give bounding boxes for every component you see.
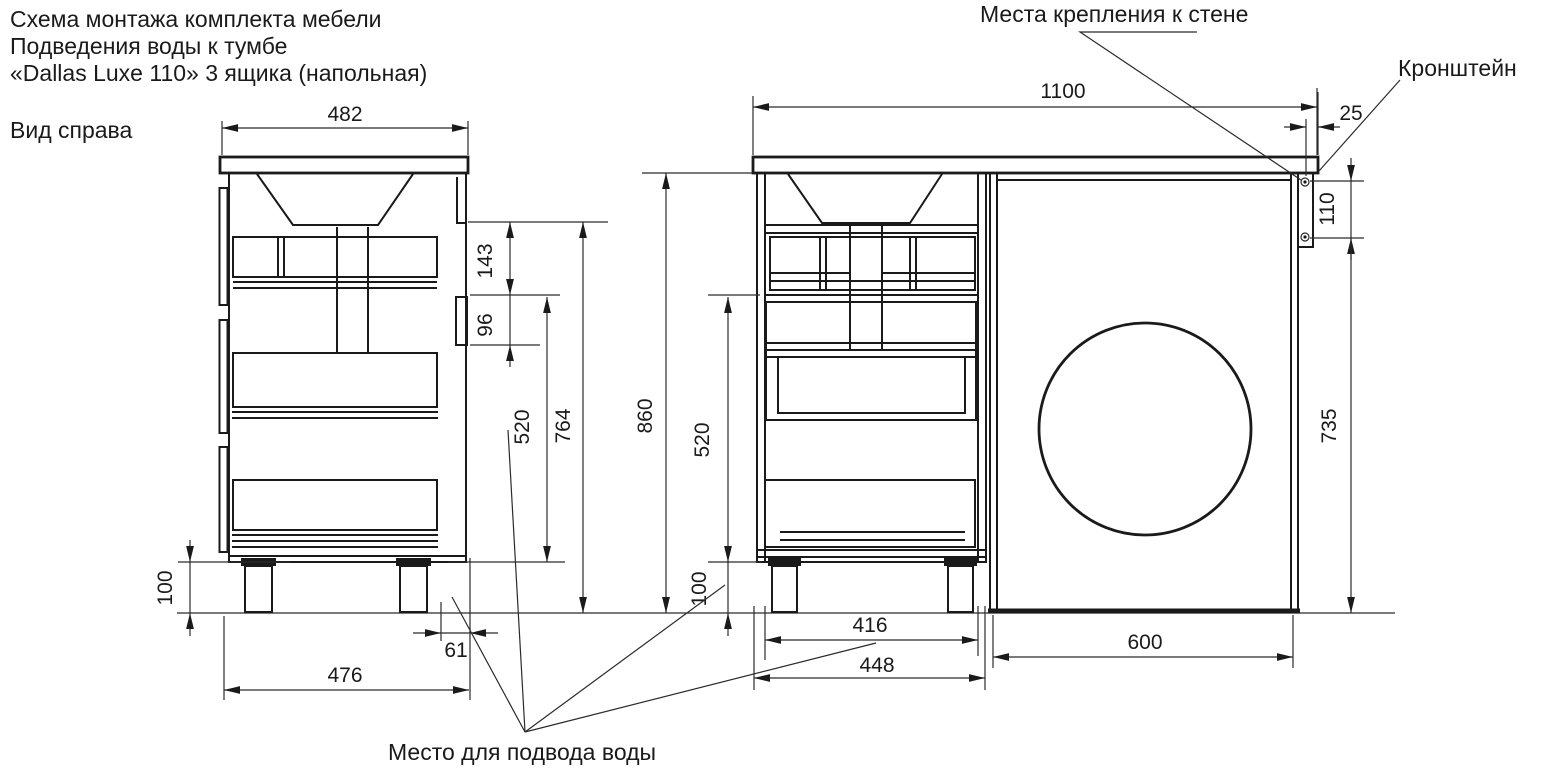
front-body — [757, 173, 986, 562]
niche-walls — [990, 173, 1298, 611]
side-view — [220, 157, 469, 612]
front-bottom-edge — [757, 550, 986, 557]
side-drawer-front-2 — [220, 320, 228, 433]
dim-side-143: 143 — [474, 243, 497, 278]
dim-side-520: 520 — [511, 409, 534, 444]
dim-side-482: 482 — [327, 103, 362, 126]
dim-front-600: 600 — [1127, 631, 1162, 654]
front-sink-bowl — [788, 174, 942, 223]
side-rail-3 — [232, 535, 438, 547]
side-leg-back — [400, 566, 427, 612]
dim-side-860: 860 — [634, 398, 657, 433]
front-drawer1-dividers — [820, 237, 916, 290]
side-countertop — [220, 157, 468, 173]
side-drawer-front-3 — [220, 447, 228, 552]
side-body — [229, 173, 466, 562]
title-line-2: Подведения воды к тумбе — [10, 33, 287, 59]
title-line-3: «Dallas Luxe 110» 3 ящика (напольная) — [10, 60, 427, 86]
water-supply-leaders — [452, 430, 876, 732]
front-drawer2-lines — [766, 343, 976, 357]
side-leg-front — [245, 566, 272, 612]
side-leg-plate-back — [396, 558, 431, 566]
dim-front-1100: 1100 — [1040, 80, 1085, 103]
washing-machine-door-circle — [1039, 323, 1251, 535]
bracket-label: Кронштейн — [1398, 55, 1517, 81]
water-supply-label: Место для подвода воды — [388, 739, 656, 765]
front-leg-plate-right — [944, 558, 977, 566]
side-sink-bowl — [257, 174, 413, 225]
view-label: Вид справа — [10, 117, 132, 143]
dim-side-100: 100 — [154, 570, 177, 605]
side-drawer-box-1 — [233, 237, 437, 277]
side-drawer-box-2 — [233, 353, 437, 407]
front-drawer-box-3 — [765, 480, 975, 547]
front-side-walls — [765, 173, 978, 562]
dim-front-735: 735 — [1318, 408, 1341, 443]
side-rail-1 — [233, 282, 437, 288]
assembly-drawing-page: Схема монтажа комплекта мебели Подведени… — [0, 0, 1547, 774]
bracket-screw-dot-bottom — [1303, 235, 1306, 238]
dim-front-25: 25 — [1339, 102, 1362, 125]
dim-side-476: 476 — [327, 664, 362, 687]
front-countertop — [753, 157, 1318, 173]
bracket-screw-dot-top — [1303, 180, 1306, 183]
front-leg-left — [772, 566, 797, 612]
front-leg-right — [948, 566, 973, 612]
side-drawer1-divider — [278, 237, 284, 277]
dim-side-61: 61 — [444, 639, 467, 662]
front-rail-top — [765, 225, 978, 233]
front-drawer-box-1 — [770, 237, 975, 290]
front-drain-pipe — [850, 225, 882, 350]
dim-front-100: 100 — [688, 571, 711, 606]
front-rail-mid — [765, 295, 978, 302]
side-drain-pipe — [337, 227, 368, 353]
dim-front-520: 520 — [691, 422, 714, 457]
front-leg-plate-left — [768, 558, 801, 566]
front-view — [753, 157, 1318, 612]
front-drawer2-inner — [778, 357, 965, 413]
side-drawer-front-1 — [220, 188, 228, 305]
title-block: Схема монтажа комплекта мебели Подведени… — [10, 6, 427, 143]
side-back-top-panel — [457, 177, 466, 223]
dim-side-764: 764 — [552, 408, 575, 443]
dim-front-416: 416 — [852, 614, 887, 637]
dim-front-110: 110 — [1316, 192, 1339, 225]
front-drawer3-lines — [780, 532, 965, 540]
dim-front-448: 448 — [859, 654, 894, 677]
dimensions-side-view: 482 143 96 520 764 860 100 61 — [154, 103, 752, 700]
front-drawer-box-2 — [766, 302, 976, 420]
wall-mount-label: Места крепления к стене — [980, 1, 1248, 27]
side-drawer-box-3 — [233, 480, 437, 530]
front-drawer1-bottom — [770, 273, 975, 281]
dimensions-front-view: 1100 25 110 735 520 100 416 448 600 — [688, 80, 1364, 690]
dim-side-96: 96 — [474, 313, 497, 336]
side-rail-2 — [232, 412, 438, 418]
assembly-drawing: Схема монтажа комплекта мебели Подведени… — [0, 0, 1547, 774]
bracket-leader — [1319, 80, 1400, 171]
title-line-1: Схема монтажа комплекта мебели — [10, 6, 382, 32]
